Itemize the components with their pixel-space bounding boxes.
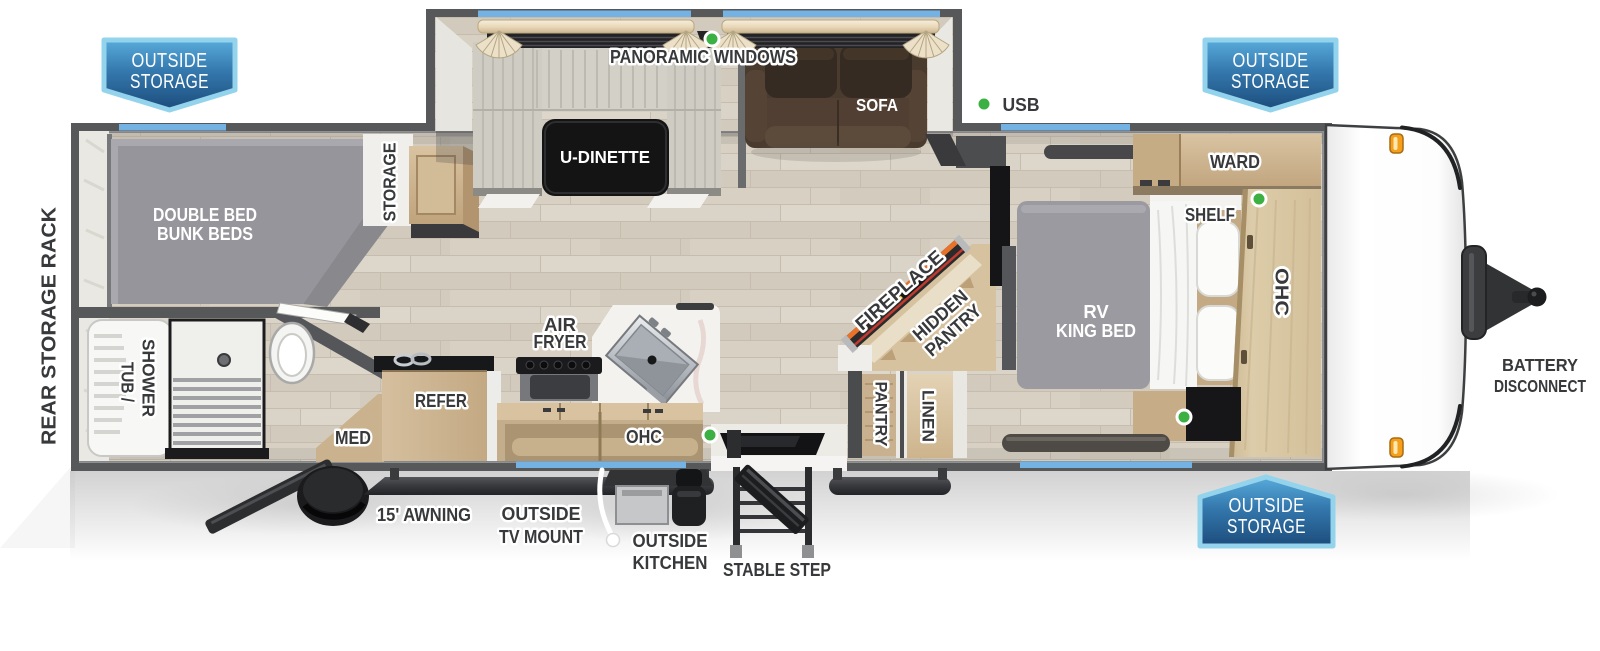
- svg-text:LINEN: LINEN: [919, 390, 938, 442]
- svg-text:OUTSIDE: OUTSIDE: [1229, 495, 1305, 517]
- svg-text:SHELF: SHELF: [1185, 204, 1235, 225]
- svg-text:OUTSIDE: OUTSIDE: [633, 530, 708, 551]
- svg-text:TV MOUNT: TV MOUNT: [499, 526, 584, 547]
- svg-text:15' AWNING: 15' AWNING: [377, 504, 471, 525]
- svg-text:REFER: REFER: [415, 390, 467, 411]
- svg-text:SOFA: SOFA: [856, 95, 898, 115]
- svg-text:STABLE STEP: STABLE STEP: [723, 559, 831, 580]
- svg-text:BATTERY: BATTERY: [1502, 355, 1578, 375]
- svg-text:STORAGE: STORAGE: [380, 143, 400, 222]
- svg-text:BUNK BEDS: BUNK BEDS: [157, 223, 253, 244]
- svg-text:REAR STORAGE RACK: REAR STORAGE RACK: [38, 207, 61, 445]
- svg-text:OUTSIDE: OUTSIDE: [502, 503, 581, 524]
- svg-text:FRYER: FRYER: [534, 331, 587, 352]
- svg-text:DOUBLE BED: DOUBLE BED: [153, 204, 257, 225]
- svg-text:STORAGE: STORAGE: [1231, 71, 1310, 93]
- svg-text:OHC: OHC: [626, 426, 662, 447]
- svg-text:OUTSIDE: OUTSIDE: [1233, 50, 1309, 72]
- svg-text:OHC: OHC: [1272, 268, 1293, 316]
- svg-text:TUB /: TUB /: [118, 362, 138, 402]
- svg-text:OUTSIDE: OUTSIDE: [132, 50, 208, 72]
- svg-text:STORAGE: STORAGE: [1227, 516, 1306, 538]
- svg-text:PANORAMIC WINDOWS: PANORAMIC WINDOWS: [610, 46, 796, 67]
- svg-text:U-DINETTE: U-DINETTE: [560, 147, 650, 167]
- svg-text:SHOWER: SHOWER: [139, 339, 159, 417]
- svg-text:PANTRY: PANTRY: [872, 382, 891, 448]
- svg-text:WARD: WARD: [1210, 151, 1260, 172]
- svg-text:RV: RV: [1083, 301, 1109, 322]
- svg-text:STORAGE: STORAGE: [130, 71, 209, 93]
- svg-text:KITCHEN: KITCHEN: [633, 552, 708, 573]
- svg-text:USB: USB: [1003, 94, 1040, 115]
- svg-text:DISCONNECT: DISCONNECT: [1494, 376, 1586, 396]
- svg-text:KING BED: KING BED: [1056, 320, 1136, 341]
- svg-text:MED: MED: [335, 427, 371, 448]
